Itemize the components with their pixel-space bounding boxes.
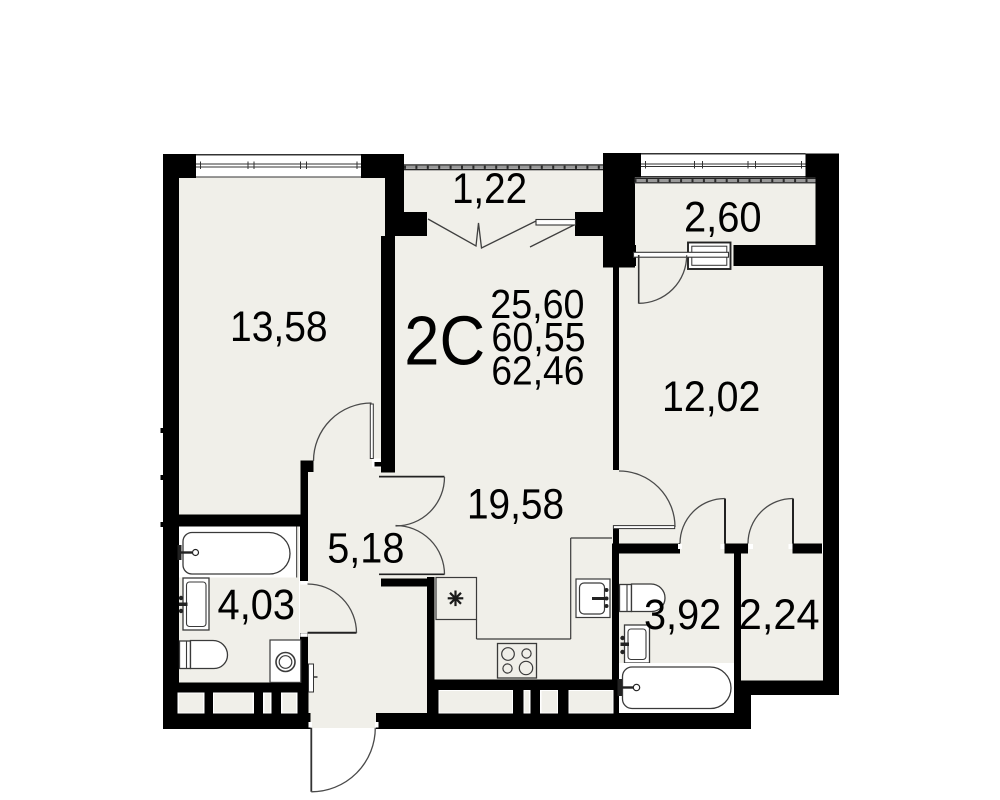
svg-text:3,92: 3,92	[644, 591, 721, 638]
svg-text:19,58: 19,58	[467, 481, 564, 528]
svg-text:2,60: 2,60	[684, 193, 762, 240]
svg-text:5,18: 5,18	[327, 524, 404, 571]
svg-text:2C: 2C	[404, 301, 485, 379]
svg-text:4,03: 4,03	[218, 581, 296, 628]
svg-text:1,22: 1,22	[452, 165, 527, 212]
svg-text:62,46: 62,46	[491, 348, 584, 394]
svg-text:13,58: 13,58	[230, 303, 328, 350]
svg-text:2,24: 2,24	[739, 591, 820, 638]
svg-text:12,02: 12,02	[662, 373, 760, 420]
